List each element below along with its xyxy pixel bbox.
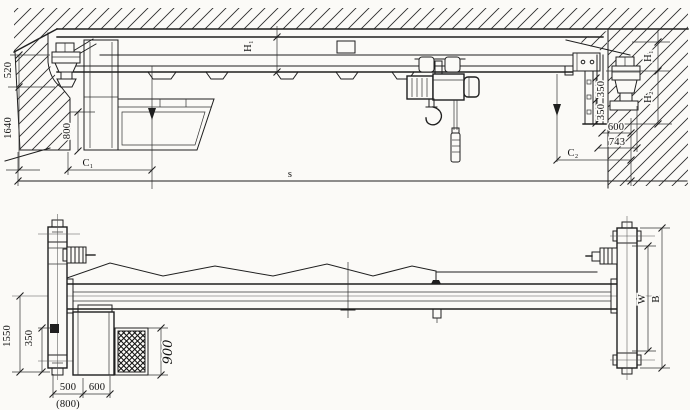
crane-technical-drawing: 520 1640 800 C₁ s H₁ 350 350 600 743 C₂ … — [0, 0, 690, 410]
hook — [426, 99, 441, 125]
dim-500-label: 500 — [60, 382, 76, 393]
plan-view: 1550 350 900 500 600 (800) W B — [2, 214, 670, 410]
dim-w-label: W — [637, 294, 648, 304]
end-truck-left — [84, 40, 118, 150]
down-arrow-right — [553, 104, 561, 116]
dim-h2-label: H₂ — [643, 91, 654, 103]
hoist-motor — [464, 77, 479, 97]
hoist-body — [433, 74, 464, 100]
trolley-wheel — [445, 57, 460, 72]
drawing-sheet: 520 1640 800 C₁ s H₁ 350 350 600 743 C₂ … — [0, 0, 690, 410]
dim-c2-label: C₂ — [567, 148, 578, 159]
buffer-block — [50, 324, 59, 333]
dim-1550-label: 1550 — [2, 325, 13, 347]
girder-access-opening — [337, 41, 355, 53]
dim-743-label: 743 — [609, 137, 625, 148]
top-view-elevation: 520 1640 800 C₁ s H₁ 350 350 600 743 C₂ … — [3, 8, 688, 189]
dim-600-label: 600 — [608, 122, 624, 133]
span-label: s — [288, 169, 292, 180]
dim-800-alt-label: (800) — [56, 399, 80, 410]
electric-hoist — [407, 57, 479, 162]
main-girder — [57, 26, 603, 79]
travel-motor-right — [586, 248, 617, 264]
cab-plan — [73, 305, 114, 375]
dim-b-label: B — [651, 295, 662, 302]
dim-350-upper-label: 350 — [596, 81, 607, 97]
dim-350-plan-label: 350 — [24, 330, 35, 346]
down-arrow-left — [148, 108, 156, 120]
hoist-drum — [407, 76, 433, 99]
dim-1640-label: 1640 — [3, 117, 14, 139]
trolley-wheel — [419, 57, 434, 72]
pendant-control — [451, 100, 460, 162]
dim-h1-label: H₁ — [643, 50, 654, 62]
trolley-plan — [433, 309, 441, 318]
dim-600-plan-label: 600 — [89, 382, 105, 393]
festoon-cable — [67, 263, 436, 278]
dim-520-label: 520 — [3, 62, 14, 78]
dim-h1-girder-label: H₁ — [243, 40, 254, 52]
operator-platform — [84, 66, 214, 189]
dim-350-lower-label: 350 — [596, 104, 607, 120]
dim-800-label: 800 — [62, 123, 73, 139]
resistor-box — [115, 328, 148, 375]
dim-900-label: 900 — [161, 340, 176, 365]
travel-motor-left — [63, 247, 95, 263]
dim-c1-label: C₁ — [82, 158, 93, 169]
